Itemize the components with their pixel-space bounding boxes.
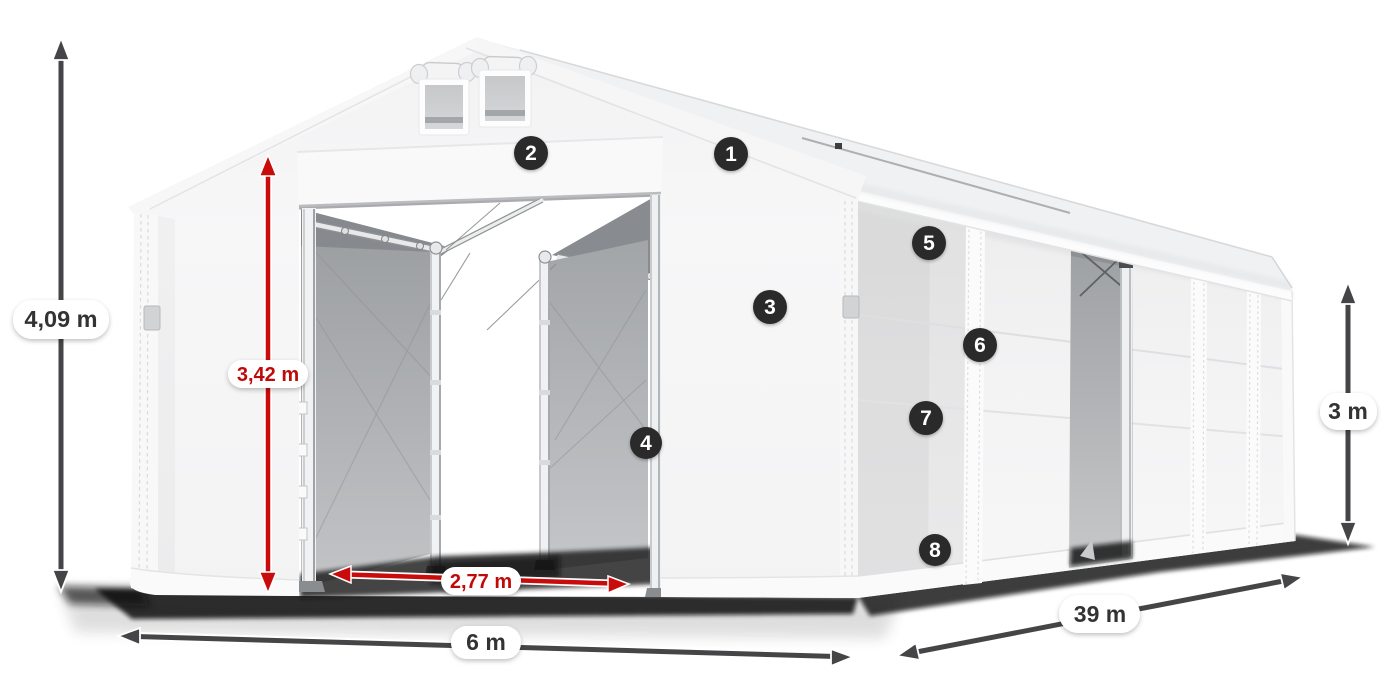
svg-text:4,09 m: 4,09 m	[24, 306, 97, 332]
svg-text:6: 6	[974, 334, 986, 357]
svg-text:5: 5	[923, 232, 935, 255]
svg-text:7: 7	[920, 407, 932, 430]
svg-text:3 m: 3 m	[1328, 398, 1368, 424]
svg-text:2: 2	[525, 142, 537, 165]
svg-text:3,42 m: 3,42 m	[237, 364, 299, 386]
svg-text:39 m: 39 m	[1074, 601, 1126, 627]
svg-text:8: 8	[929, 539, 941, 562]
svg-text:1: 1	[725, 143, 737, 166]
svg-text:4: 4	[640, 432, 652, 455]
svg-text:3: 3	[764, 296, 776, 319]
svg-text:2,77 m: 2,77 m	[450, 571, 512, 593]
svg-text:6 m: 6 m	[466, 629, 506, 655]
